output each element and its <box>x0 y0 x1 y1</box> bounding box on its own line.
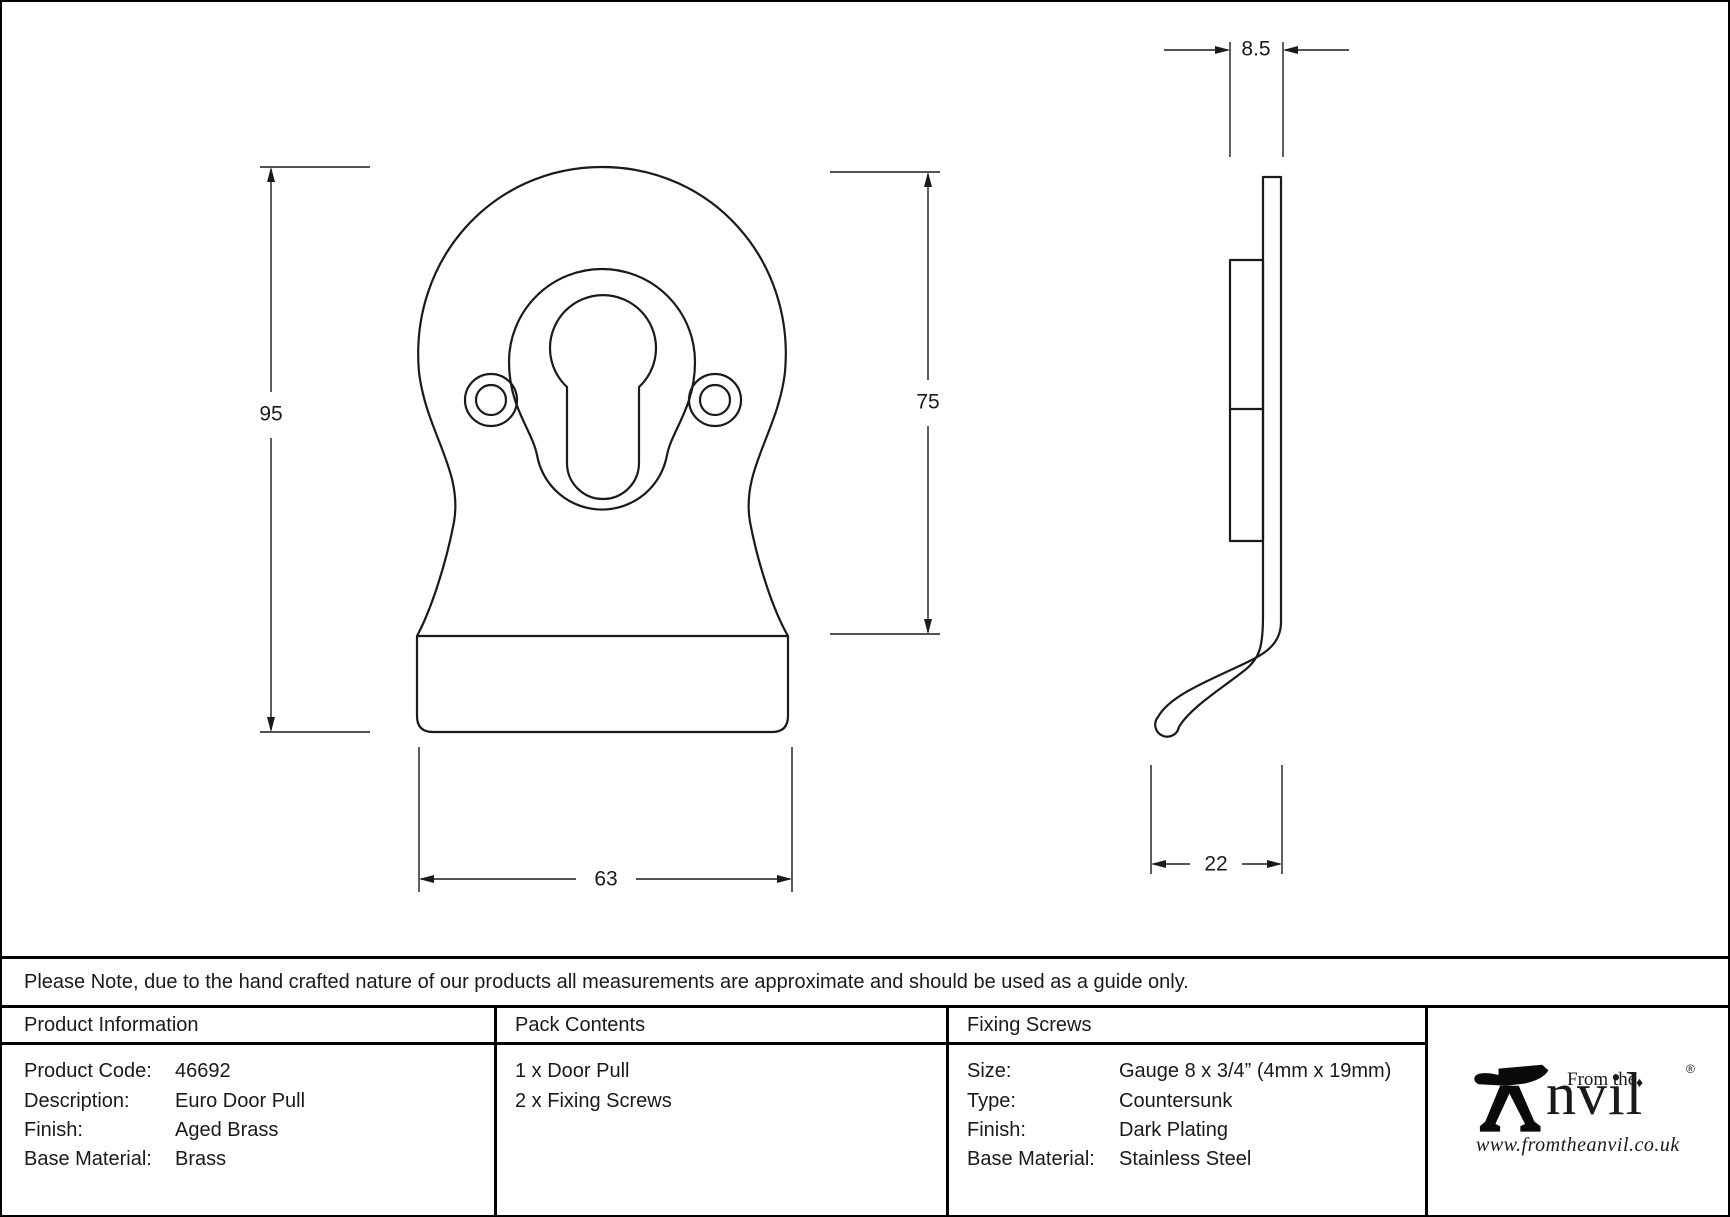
screw-type-label: Type: <box>967 1086 1016 1116</box>
measurement-note: Please Note, due to the hand crafted nat… <box>2 959 1728 1005</box>
table-header-rule <box>2 1042 1425 1045</box>
side-view-drawing <box>1155 177 1281 737</box>
screw-size-value: Gauge 8 x 3/4” (4mm x 19mm) <box>1119 1056 1391 1086</box>
dim-label-overall-height: 95 <box>259 403 282 426</box>
front-view-outline <box>417 167 788 732</box>
screw-finish-value: Dark Plating <box>1119 1115 1228 1145</box>
screw-finish-label: Finish: <box>967 1115 1026 1145</box>
finish-value: Aged Brass <box>175 1115 278 1145</box>
euro-keyhole <box>550 295 656 499</box>
front-view-drawing <box>417 167 788 732</box>
technical-drawing: 95 75 63 8.5 22 <box>2 2 1728 956</box>
left-screw-hole-outer <box>465 374 517 426</box>
screw-size-label: Size: <box>967 1056 1011 1086</box>
pack-item-1: 1 x Door Pull <box>515 1056 630 1086</box>
dim-overall-height <box>260 167 370 732</box>
dim-label-projection-depth: 8.5 <box>1241 38 1270 61</box>
header-product-information: Product Information <box>24 1008 199 1042</box>
dim-label-plate-height: 75 <box>916 391 939 414</box>
escutcheon-outline <box>509 269 695 510</box>
base-material-label: Base Material: <box>24 1144 152 1174</box>
screw-base-material-label: Base Material: <box>967 1144 1095 1174</box>
left-screw-hole-inner <box>476 385 506 415</box>
brand-logo: nvil From the ♦ ® www.fromtheanvil.co.uk <box>1450 1058 1722 1168</box>
table-top-rule <box>2 1005 1728 1008</box>
header-pack-contents: Pack Contents <box>515 1008 645 1042</box>
brand-prefix-text: From the <box>1567 1070 1636 1089</box>
finish-label: Finish: <box>24 1115 83 1145</box>
side-cylinder-housing <box>1230 260 1263 541</box>
table-divider-1 <box>494 1005 497 1215</box>
table-divider-3 <box>1425 1005 1428 1215</box>
pack-item-2: 2 x Fixing Screws <box>515 1086 672 1116</box>
base-material-value: Brass <box>175 1144 226 1174</box>
description-label: Description: <box>24 1086 130 1116</box>
brand-website: www.fromtheanvil.co.uk <box>1476 1134 1680 1157</box>
table-divider-2 <box>946 1005 949 1215</box>
dim-label-hook-depth: 22 <box>1204 853 1227 876</box>
product-code-value: 46692 <box>175 1056 231 1086</box>
screw-type-value: Countersunk <box>1119 1086 1232 1116</box>
right-screw-hole-inner <box>700 385 730 415</box>
spec-sheet-page: 95 75 63 8.5 22 Please Note, due to the … <box>0 0 1730 1217</box>
registered-trademark-icon: ® <box>1686 1062 1695 1076</box>
diamond-ornament-icon: ♦ <box>1636 1074 1643 1090</box>
description-value: Euro Door Pull <box>175 1086 305 1116</box>
screw-base-material-value: Stainless Steel <box>1119 1144 1251 1174</box>
anvil-icon <box>1472 1064 1550 1134</box>
dim-label-overall-width: 63 <box>594 868 617 891</box>
header-fixing-screws: Fixing Screws <box>967 1008 1091 1042</box>
product-code-label: Product Code: <box>24 1056 152 1086</box>
right-screw-hole-outer <box>689 374 741 426</box>
